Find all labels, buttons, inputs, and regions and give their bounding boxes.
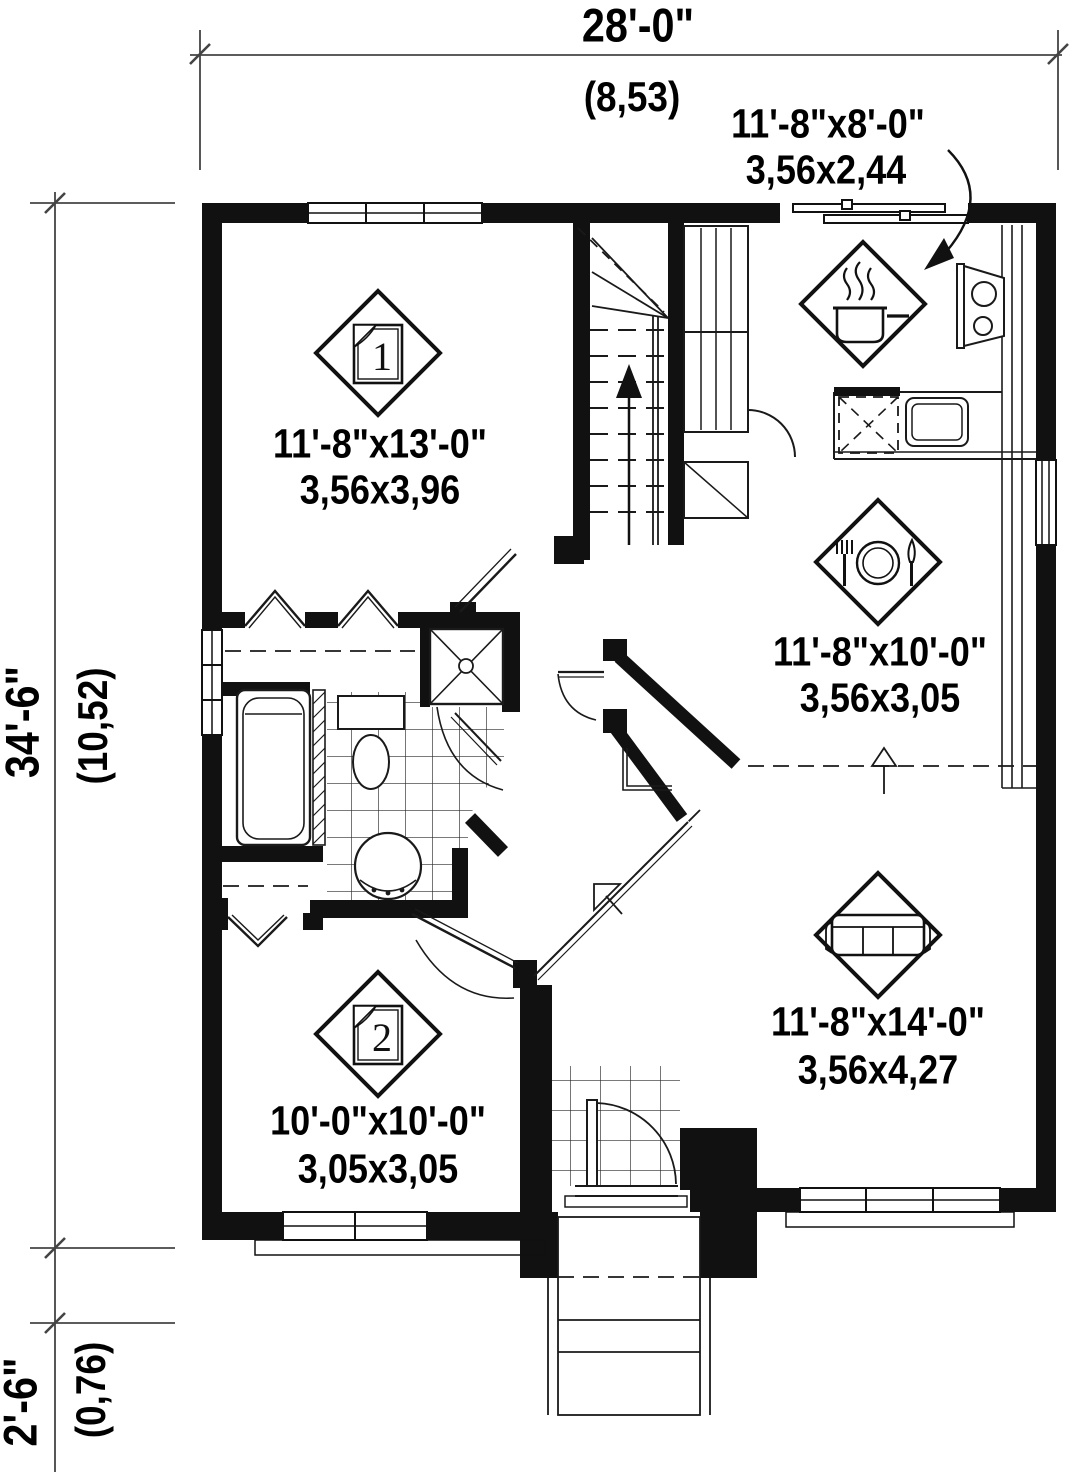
pedestal-sink [355, 833, 421, 899]
bedroom-1-size-metric: 3,56x3,96 [300, 470, 461, 511]
kitchen-icon [801, 242, 925, 366]
floor-plan-canvas: 1 [0, 0, 1080, 1472]
overall-height-imperial: 34'-6" [0, 666, 46, 778]
bathroom-angled-wall [470, 818, 503, 852]
bedroom-2-icon: 2 [316, 972, 440, 1096]
porch-depth-metric: (0,76) [70, 1342, 112, 1439]
bedroom-2-badge: 2 [372, 1015, 392, 1060]
bedroom-1-badge: 1 [372, 334, 392, 379]
living-window [786, 1188, 1014, 1227]
stair-up-arrow [616, 364, 642, 545]
dining-room-icon [816, 500, 940, 624]
bedroom-2-size-imperial: 10'-0"x10'-0" [270, 1101, 486, 1142]
dining-window [1036, 460, 1056, 545]
bedroom-2-size-metric: 3,05x3,05 [298, 1149, 459, 1190]
refrigerator-cabinet [684, 226, 795, 518]
stove [957, 264, 1004, 348]
shower [430, 629, 503, 704]
dining-size-metric: 3,56x3,05 [800, 678, 961, 719]
bedroom-1-size-imperial: 11'-8"x13'-0" [273, 424, 487, 465]
staircase [573, 223, 684, 560]
porch-depth-imperial: 2'-6" [0, 1357, 44, 1446]
kitchen-size-metric: 3,56x2,44 [746, 150, 907, 191]
entry-steps [548, 1217, 710, 1415]
dishwasher [834, 387, 900, 453]
overall-width-imperial: 28'-0" [582, 2, 694, 49]
dining-size-imperial: 11'-8"x10'-0" [773, 632, 987, 673]
hall-closet-wall-lower [616, 729, 682, 818]
bathroom-window [202, 630, 222, 735]
kitchen-sink [906, 398, 968, 446]
foyer-tile-floor [552, 1066, 680, 1186]
overall-width-metric: (8,53) [584, 76, 681, 118]
floor-plan-page: 1 [0, 0, 1080, 1472]
bedroom2-door [412, 909, 518, 998]
bathtub [237, 690, 310, 845]
kitchen-window [780, 200, 968, 224]
living-room-icon [816, 873, 940, 997]
living-size-metric: 3,56x4,27 [798, 1050, 959, 1091]
kitchen-size-imperial: 11'-8"x8'-0" [731, 104, 925, 145]
bedroom1-window [308, 203, 482, 223]
bedroom-1-icon: 1 [316, 291, 440, 415]
hall-lines [534, 748, 1036, 980]
living-size-imperial: 11'-8"x14'-0" [771, 1002, 985, 1043]
overall-height-metric: (10,52) [72, 667, 114, 784]
tiled-half-wall [313, 690, 325, 845]
